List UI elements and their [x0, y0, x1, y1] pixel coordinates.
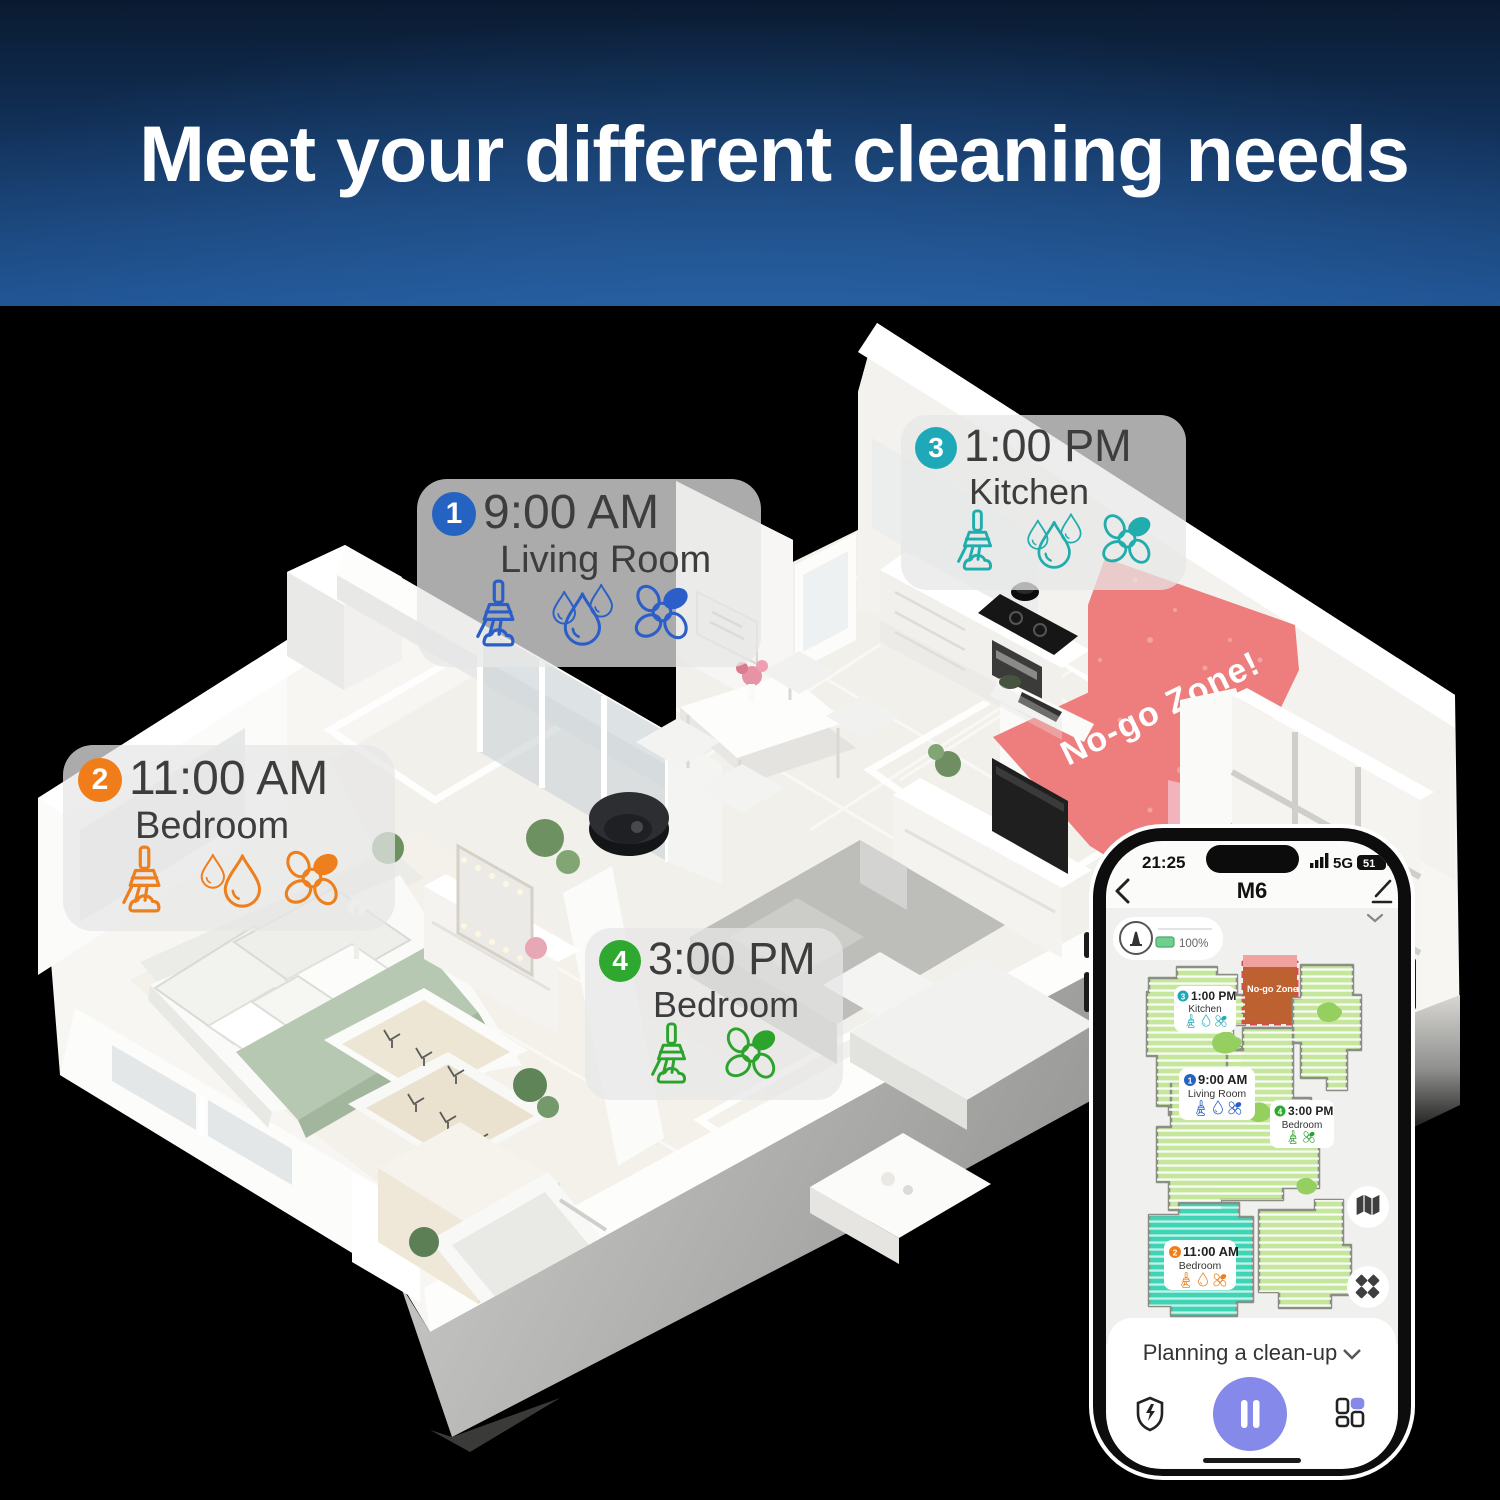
svg-text:Living Room: Living Room — [1188, 1088, 1247, 1100]
svg-text:3:00 PM: 3:00 PM — [1288, 1104, 1333, 1118]
svg-text:9:00 AM: 9:00 AM — [1198, 1072, 1247, 1087]
svg-text:3: 3 — [1181, 993, 1186, 1002]
svg-text:1:00 PM: 1:00 PM — [1191, 989, 1236, 1003]
svg-text:5G: 5G — [1333, 855, 1353, 872]
svg-text:Bedroom: Bedroom — [1282, 1120, 1323, 1131]
svg-text:M6: M6 — [1237, 878, 1268, 903]
svg-text:Planning a clean-up: Planning a clean-up — [1143, 1340, 1337, 1365]
svg-text:No-go Zone: No-go Zone — [1247, 984, 1298, 994]
svg-text:Kitchen: Kitchen — [1188, 1004, 1221, 1015]
svg-text:51: 51 — [1363, 858, 1375, 870]
svg-text:11:00 AM: 11:00 AM — [1183, 1244, 1239, 1259]
svg-text:21:25: 21:25 — [1142, 853, 1185, 872]
svg-text:2: 2 — [1173, 1248, 1178, 1258]
svg-text:4: 4 — [1278, 1108, 1283, 1117]
svg-text:1: 1 — [1188, 1076, 1193, 1086]
svg-text:100%: 100% — [1179, 938, 1208, 950]
svg-text:Bedroom: Bedroom — [1179, 1260, 1222, 1272]
